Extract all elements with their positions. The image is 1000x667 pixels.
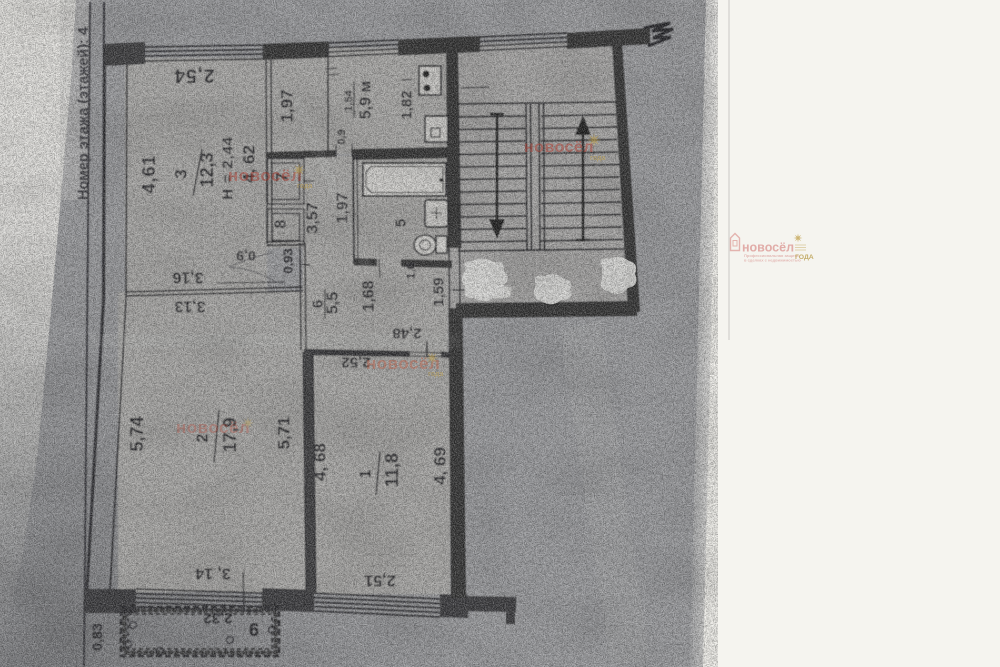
svg-text:в сделках с недвижимостью: в сделках с недвижимостью (744, 258, 801, 263)
svg-text:новосёл: новосёл (176, 418, 250, 437)
svg-text:года: года (428, 371, 443, 378)
svg-text:года: года (590, 155, 605, 162)
svg-text:новосёл: новосёл (524, 139, 594, 156)
svg-text:года: года (297, 183, 312, 190)
svg-text:новосёл: новосёл (228, 166, 302, 185)
svg-text:ГОДА: ГОДА (795, 254, 814, 261)
